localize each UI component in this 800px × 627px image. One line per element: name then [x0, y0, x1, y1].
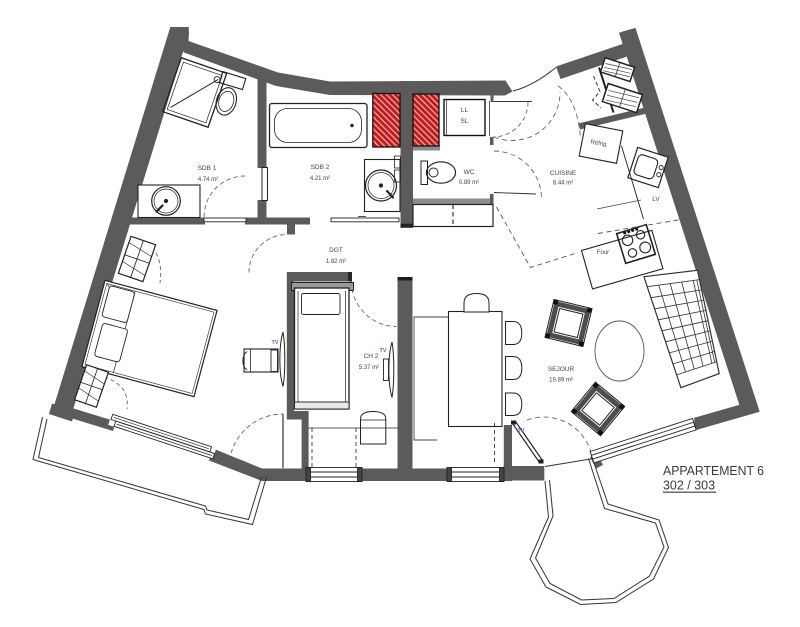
svg-text:TV: TV: [379, 348, 386, 354]
svg-text:8.44 m²: 8.44 m²: [553, 181, 573, 187]
svg-text:CH 2: CH 2: [364, 353, 379, 360]
svg-text:1.82 m²: 1.82 m²: [326, 259, 346, 265]
svg-text:4.74 m²: 4.74 m²: [198, 177, 218, 183]
svg-text:SEJOUR: SEJOUR: [548, 366, 575, 373]
svg-text:APPARTEMENT 6: APPARTEMENT 6: [663, 463, 764, 478]
svg-text:19.89 m²: 19.89 m²: [549, 378, 573, 384]
svg-text:302 / 303: 302 / 303: [663, 478, 715, 493]
svg-text:LL: LL: [461, 107, 469, 114]
svg-text:WC: WC: [464, 169, 475, 176]
svg-text:TV: TV: [517, 428, 524, 434]
svg-text:Four: Four: [597, 250, 609, 256]
svg-text:DGT: DGT: [329, 247, 343, 254]
svg-text:SDB 1: SDB 1: [198, 165, 217, 172]
svg-text:5.37 m²: 5.37 m²: [359, 365, 379, 371]
svg-text:0.89 m²: 0.89 m²: [459, 180, 479, 186]
svg-text:4.21 m²: 4.21 m²: [310, 176, 330, 182]
svg-text:TV: TV: [271, 340, 278, 346]
svg-text:CUISINE: CUISINE: [550, 170, 577, 177]
svg-text:LV: LV: [652, 196, 660, 203]
svg-text:SDB 2: SDB 2: [311, 164, 330, 171]
svg-text:SL: SL: [461, 118, 469, 125]
